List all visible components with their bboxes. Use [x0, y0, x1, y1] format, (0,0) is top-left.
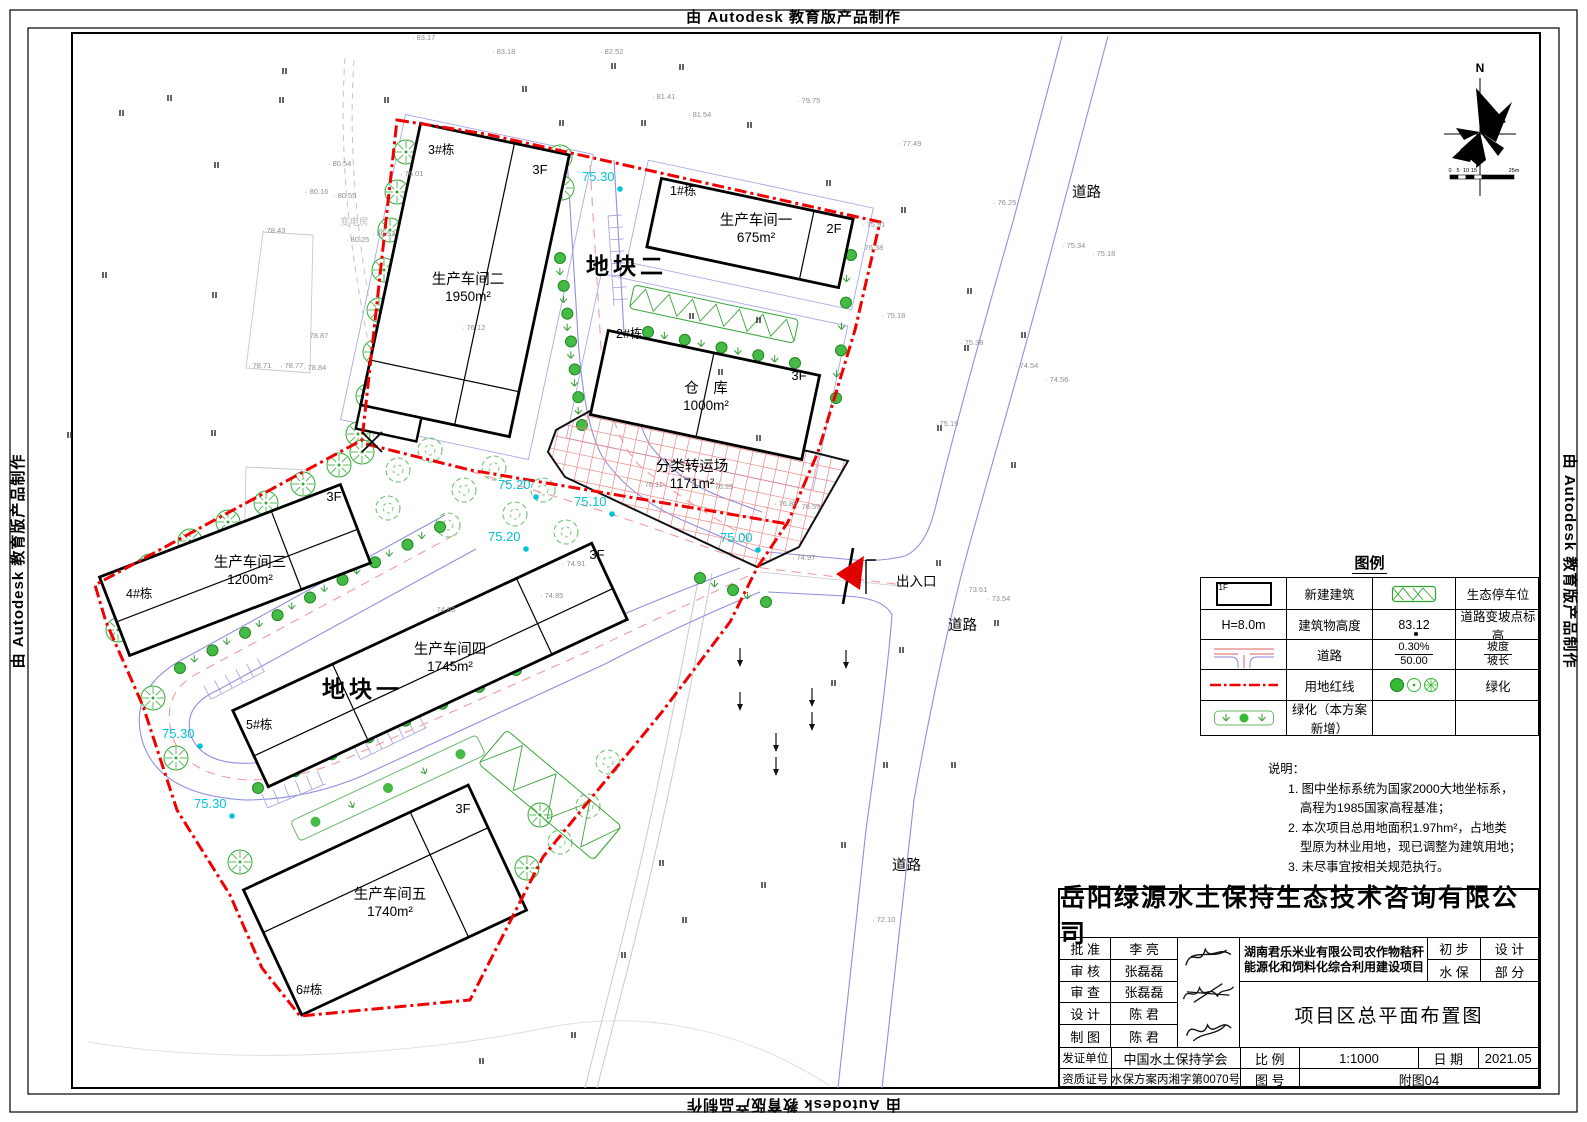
legend-greening-label: 绿化	[1456, 670, 1540, 701]
issuer-label: 发证单位	[1060, 1048, 1112, 1069]
svg-text:· 76.11: · 76.11	[640, 480, 663, 489]
grass-tick-icon	[385, 97, 388, 103]
svg-text:仓 库: 仓 库	[684, 380, 728, 397]
tree-icon	[716, 342, 727, 353]
signatures-column	[1178, 938, 1240, 1047]
svg-text:· 74.85: · 74.85	[540, 591, 563, 600]
svg-text:生产车间五: 生产车间五	[354, 886, 427, 903]
grass-icon	[418, 532, 425, 539]
drawing-sheet: 变电房 3#栋生产车间二1950m²3F1#栋生产车间一675m²2F2#栋仓 …	[0, 0, 1587, 1122]
svg-text:75.00: 75.00	[720, 530, 753, 545]
autodesk-banner-left: 由 Autodesk 教育版产品制作	[9, 281, 29, 841]
svg-text:· 75.19: · 75.19	[935, 419, 958, 428]
svg-text:· 75.91: · 75.91	[862, 220, 885, 229]
role-name: 陈 君	[1111, 1003, 1177, 1025]
bush-icon	[503, 502, 527, 526]
grass-icon	[321, 585, 328, 592]
grass-tick-icon	[622, 952, 625, 958]
title-block: 岳阳绿源水土保持生态技术咨询有限公司 批 准 审 核 审 查 设 计 制 图 李…	[1058, 888, 1540, 1088]
tree-icon	[643, 327, 654, 338]
role-labels-column: 批 准 审 核 审 查 设 计 制 图	[1060, 938, 1111, 1047]
grass-tick-icon	[660, 860, 663, 866]
down-arrow-icon	[773, 769, 779, 776]
svg-text:· 81.41: · 81.41	[652, 92, 675, 101]
svg-text:分类转运场: 分类转运场	[656, 458, 729, 475]
svg-text:0: 0	[1448, 168, 1451, 174]
grass-tick-icon	[215, 162, 218, 168]
svg-text:75.10: 75.10	[574, 494, 607, 509]
role-label: 制 图	[1060, 1025, 1111, 1047]
notes-title: 说明：	[1268, 760, 1560, 780]
svg-text:· 78.43: · 78.43	[262, 226, 285, 235]
grass-icon	[711, 580, 718, 587]
scale-label: 比 例	[1241, 1048, 1301, 1069]
role-name: 陈 君	[1111, 1025, 1177, 1047]
grass-icon	[571, 379, 578, 386]
tree-icon	[573, 392, 584, 403]
grass-icon	[734, 347, 741, 354]
svg-text:生产车间三: 生产车间三	[214, 554, 287, 571]
legend-new-building-icon: 1F	[1201, 578, 1287, 610]
grass-icon	[556, 268, 563, 275]
svg-text:· 83.18: · 83.18	[492, 47, 515, 56]
svg-text:· 74.54: · 74.54	[1015, 361, 1038, 370]
legend-greening-icon	[1373, 670, 1456, 701]
north-compass: N05101525m	[1444, 61, 1520, 196]
company-name: 岳阳绿源水土保持生态技术咨询有限公司	[1060, 890, 1538, 938]
tree-icon	[558, 280, 569, 291]
svg-text:生产车间四: 生产车间四	[414, 641, 487, 658]
svg-text:· 76.25: · 76.25	[993, 198, 1016, 207]
part-label: 水 保	[1428, 960, 1481, 982]
grass-tick-icon	[968, 288, 971, 294]
tree-icon	[272, 610, 283, 621]
grass-tick-icon	[748, 122, 751, 128]
svg-text:1200m²: 1200m²	[227, 572, 273, 587]
grass-tick-icon	[1012, 462, 1015, 468]
grass-tick-icon	[283, 68, 286, 74]
fig-value: 附图04	[1300, 1069, 1538, 1089]
bush-icon	[554, 520, 578, 544]
grass-tick-icon	[213, 292, 216, 298]
bush-icon	[386, 458, 410, 482]
grass-tick-icon	[832, 680, 835, 686]
svg-text:6#栋: 6#栋	[296, 982, 322, 997]
svg-text:2F: 2F	[826, 221, 841, 236]
down-arrow-icon	[737, 704, 743, 711]
note-line: 1. 图中坐标系统为国家2000大地坐标系，	[1268, 780, 1560, 800]
bush-icon	[596, 750, 620, 774]
tree-icon	[836, 345, 847, 356]
tree-icon	[569, 364, 580, 375]
svg-text:· 72.10: · 72.10	[872, 915, 895, 924]
tree-icon	[240, 627, 251, 638]
note-line: 2. 本次项目总用地面积1.97hm²，占地类	[1268, 819, 1560, 839]
grass-icon	[386, 549, 393, 556]
role-label: 审 查	[1060, 982, 1111, 1004]
eco-parking-strip	[478, 730, 621, 860]
svg-text:1#栋: 1#栋	[670, 183, 696, 198]
tree-icon	[841, 297, 852, 308]
grass-tick-icon	[884, 762, 887, 768]
autodesk-banner-right: 由 Autodesk 教育版产品制作	[1559, 281, 1579, 841]
autodesk-banner-bottom: 由 Autodesk 教育版产品制作	[0, 1094, 1587, 1114]
tree-icon	[305, 592, 316, 603]
signature-li-liang	[1179, 941, 1237, 971]
tree-icon	[515, 856, 539, 880]
svg-text:· 80.55: · 80.55	[333, 191, 356, 200]
tree-icon	[555, 253, 566, 264]
svg-text:· 73.54: · 73.54	[987, 594, 1010, 603]
svg-text:3F: 3F	[589, 547, 604, 562]
grass-icon	[661, 332, 668, 339]
exit-label: 出入口	[896, 574, 937, 589]
down-arrow-icon	[737, 660, 743, 667]
down-arrow-icon	[809, 700, 815, 707]
grass-icon	[256, 620, 263, 627]
svg-text:75.20: 75.20	[488, 529, 521, 544]
svg-text:1740m²: 1740m²	[367, 904, 413, 919]
svg-text:· 75.34: · 75.34	[1062, 241, 1085, 250]
grass-tick-icon	[103, 272, 106, 278]
legend-title: 图例	[1200, 552, 1539, 573]
legend-redline-label: 用地红线	[1287, 670, 1373, 701]
legend-slope-label: 坡度坡长	[1456, 640, 1540, 670]
buildings-layer	[100, 123, 854, 1015]
fig-label: 图 号	[1241, 1069, 1301, 1089]
cert-label: 资质证号	[1060, 1069, 1112, 1089]
date-label: 日 期	[1419, 1048, 1479, 1069]
tree-icon	[566, 336, 577, 347]
grass-tick-icon	[842, 842, 845, 848]
grass-tick-icon	[120, 110, 123, 116]
tree-icon	[761, 597, 772, 608]
legend-table: 1F 新建建筑 生态停车位 H=8.0m 建筑物高度 83.12 道路变坡点标高	[1200, 577, 1539, 736]
svg-text:· 76.12: · 76.12	[462, 323, 485, 332]
scale-value: 1:1000	[1300, 1048, 1419, 1069]
svg-text:生产车间二: 生产车间二	[432, 271, 505, 288]
issuer-value: 中国水土保持学会	[1112, 1048, 1241, 1069]
svg-text:· 76.59: · 76.59	[797, 502, 820, 511]
svg-text:1950m²: 1950m²	[445, 289, 491, 304]
role-label: 批 准	[1060, 938, 1111, 960]
tree-icon	[164, 746, 188, 770]
grass-tick-icon	[1022, 332, 1025, 338]
legend-empty-2	[1456, 701, 1540, 735]
tree-icon	[695, 573, 706, 584]
svg-text:· 76.01: · 76.01	[400, 169, 423, 178]
bush-icon	[452, 478, 476, 502]
part-value: 部 分	[1481, 960, 1538, 982]
svg-text:75.30: 75.30	[162, 726, 195, 741]
svg-text:· 76.88: · 76.88	[774, 499, 797, 508]
svg-text:· 73.61: · 73.61	[964, 585, 987, 594]
role-name: 李 亮	[1111, 938, 1177, 960]
down-arrow-icon	[773, 745, 779, 752]
grass-tick-icon	[683, 917, 686, 923]
note-line: 3. 未尽事宜按相关规范执行。	[1268, 858, 1560, 878]
svg-text:· 75.18: · 75.18	[882, 311, 905, 320]
grass-icon	[288, 602, 295, 609]
grass-tick-icon	[680, 64, 683, 70]
svg-text:75.30: 75.30	[194, 796, 227, 811]
svg-text:· 76.38: · 76.38	[860, 243, 883, 252]
cert-value: 水保方案丙湘字第0070号	[1112, 1069, 1241, 1089]
role-label: 设 计	[1060, 1003, 1111, 1025]
svg-text:· 80.52: · 80.52	[372, 229, 395, 238]
svg-text:· 81.54: · 81.54	[688, 110, 711, 119]
svg-text:· 80.16: · 80.16	[305, 187, 328, 196]
substation-label: 变电房	[340, 216, 369, 228]
down-arrow-icon	[809, 724, 815, 731]
grass-tick-icon	[68, 432, 71, 438]
bush-icon	[548, 830, 572, 854]
grass-icon	[567, 351, 574, 358]
grass-tick-icon	[612, 63, 615, 69]
grass-icon	[771, 355, 778, 362]
stage-label: 初 步	[1428, 938, 1481, 960]
tree-icon	[402, 539, 413, 550]
legend-empty-1	[1373, 701, 1456, 735]
legend-new-greening-icon	[1201, 701, 1287, 735]
legend-redline-icon	[1201, 670, 1287, 701]
tree-icon	[141, 686, 165, 710]
grass-tick-icon	[762, 882, 765, 888]
svg-text:生产车间一: 生产车间一	[720, 212, 793, 229]
stage-value: 设 计	[1481, 938, 1538, 960]
grass-tick-icon	[900, 647, 903, 653]
svg-text:15: 15	[1471, 168, 1477, 174]
grass-tick-icon	[642, 120, 645, 126]
grass-tick-icon	[212, 430, 215, 436]
svg-text:25m: 25m	[1509, 168, 1520, 174]
legend-slope-symbol: 0.30%50.00	[1373, 640, 1456, 670]
autodesk-banner-top: 由 Autodesk 教育版产品制作	[0, 8, 1587, 28]
signature-chen-jun	[1179, 1014, 1237, 1044]
grass-tick-icon	[560, 120, 563, 126]
legend-height-symbol: H=8.0m	[1201, 610, 1287, 640]
road-label: 道路	[1072, 184, 1101, 201]
svg-text:· 75.38: · 75.38	[960, 338, 983, 347]
svg-text:3#栋: 3#栋	[428, 142, 454, 157]
role-name: 张磊磊	[1111, 960, 1177, 982]
svg-text:· 78.87: · 78.87	[305, 331, 328, 340]
svg-text:3F: 3F	[326, 489, 341, 504]
grass-icon	[833, 370, 840, 377]
drawing-title: 项目区总平面布置图	[1240, 982, 1538, 1047]
grass-tick-icon	[168, 95, 171, 101]
svg-text:5#栋: 5#栋	[246, 717, 272, 732]
svg-text:1745m²: 1745m²	[427, 659, 473, 674]
role-name: 张磊磊	[1111, 982, 1177, 1004]
svg-text:· 82.52: · 82.52	[600, 47, 623, 56]
grass-icon	[843, 275, 850, 282]
svg-text:4#栋: 4#栋	[126, 586, 152, 601]
legend: 图例 1F 新建建筑 生态停车位 H=8.0m 建筑物高度 83.12 道路变坡…	[1200, 552, 1539, 736]
grass-tick-icon	[995, 620, 998, 626]
svg-text:· 79.75: · 79.75	[797, 96, 820, 105]
grass-tick-icon	[480, 1058, 483, 1064]
grass-icon	[191, 655, 198, 662]
notes: 说明： 1. 图中坐标系统为国家2000大地坐标系， 高程为1985国家高程基准…	[1268, 760, 1560, 877]
grass-tick-icon	[523, 86, 526, 92]
svg-text:· 75.18: · 75.18	[1092, 249, 1115, 258]
tree-icon	[253, 783, 264, 794]
grass-icon	[560, 296, 567, 303]
tree-icon	[562, 308, 573, 319]
tree-icon	[207, 645, 218, 656]
svg-text:2#栋: 2#栋	[616, 326, 642, 341]
grass-tick-icon	[952, 762, 955, 768]
svg-text:· 76.25: · 76.25	[710, 482, 733, 491]
svg-text:· 78.71: · 78.71	[248, 361, 271, 370]
svg-text:· 80.25: · 80.25	[346, 235, 369, 244]
grass-tick-icon	[827, 180, 830, 186]
tree-icon	[790, 358, 801, 369]
down-arrow-icon	[843, 662, 849, 669]
road-label: 道路	[948, 617, 977, 634]
tree-icon	[679, 334, 690, 345]
signature-zhang-leilei	[1179, 977, 1237, 1007]
svg-text:75.30: 75.30	[582, 169, 615, 184]
svg-text:· 83.17: · 83.17	[412, 33, 435, 42]
legend-new-greening-label: 绿化（本方案新增）	[1287, 701, 1373, 735]
svg-text:· 78.84: · 78.84	[303, 363, 326, 372]
tree-icon	[435, 522, 446, 533]
role-names-column: 李 亮 张磊磊 张磊磊 陈 君 陈 君	[1111, 938, 1177, 1047]
svg-text:· 80.54: · 80.54	[328, 159, 351, 168]
svg-text:· 74.83: · 74.83	[432, 605, 455, 614]
legend-new-building-label: 新建建筑	[1287, 578, 1373, 610]
svg-text:10: 10	[1463, 168, 1469, 174]
svg-text:5: 5	[1456, 168, 1459, 174]
svg-text:75.20: 75.20	[498, 477, 531, 492]
date-value: 2021.05	[1479, 1048, 1539, 1069]
grass-tick-icon	[902, 207, 905, 213]
road-label: 道路	[892, 857, 921, 874]
svg-text:· 77.49: · 77.49	[898, 139, 921, 148]
bush-icon	[376, 496, 400, 520]
tree-icon	[753, 350, 764, 361]
svg-text:3F: 3F	[791, 368, 806, 383]
grass-icon	[838, 323, 845, 330]
project-name: 湖南君乐米业有限公司农作物秸秆 能源化和饲料化综合利用建设项目	[1240, 938, 1428, 981]
svg-text:N: N	[1476, 61, 1485, 75]
grass-icon	[698, 340, 705, 347]
tree-icon	[728, 585, 739, 596]
legend-elevation-symbol: 83.12	[1373, 610, 1456, 640]
svg-text:3F: 3F	[455, 801, 470, 816]
design-stage: 初 步 设 计 水 保 部 分	[1428, 938, 1538, 981]
grass-tick-icon	[280, 97, 283, 103]
legend-road-label: 道路	[1287, 640, 1373, 670]
block-label: 地块二	[586, 253, 667, 279]
tree-icon	[228, 850, 252, 874]
legend-eco-parking-label: 生态停车位	[1456, 578, 1540, 610]
legend-height-label: 建筑物高度	[1287, 610, 1373, 640]
role-label: 审 核	[1060, 960, 1111, 982]
svg-text:675m²: 675m²	[737, 230, 776, 245]
svg-text:1171m²: 1171m²	[670, 476, 715, 491]
tree-icon	[175, 663, 186, 674]
legend-road-icon	[1201, 640, 1287, 670]
grass-icon	[575, 407, 582, 414]
svg-text:1000m²: 1000m²	[683, 398, 729, 413]
grass-tick-icon	[757, 317, 760, 323]
svg-text:3F: 3F	[532, 162, 547, 177]
note-line: 高程为1985国家高程基准；	[1268, 799, 1560, 819]
legend-elevation-label: 道路变坡点标高	[1456, 610, 1540, 640]
note-line: 型原为林业用地，现已调整为建筑用地；	[1268, 838, 1560, 858]
grass-icon	[223, 638, 230, 645]
svg-text:· 74.56: · 74.56	[1045, 375, 1068, 384]
grass-icon	[564, 324, 571, 331]
grass-tick-icon	[572, 1032, 575, 1038]
svg-text:· 74.97: · 74.97	[792, 553, 815, 562]
block-label: 地块一	[322, 676, 403, 702]
grass-tick-icon	[690, 313, 693, 319]
svg-text:· 78.77: · 78.77	[280, 361, 303, 370]
grass-tick-icon	[937, 560, 940, 566]
svg-text:· 74.91: · 74.91	[562, 559, 585, 568]
legend-eco-parking-icon	[1373, 578, 1456, 610]
